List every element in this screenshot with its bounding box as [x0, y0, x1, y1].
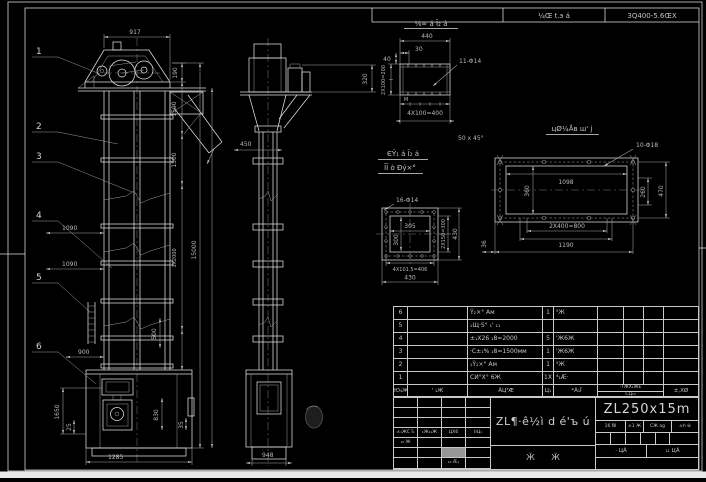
balloon-6: 6 [36, 342, 42, 352]
dim-500: 500 [151, 328, 158, 340]
dim-holes-11: 11-Φ14 [459, 58, 481, 65]
dim-holes-10: 10-Φ18 [636, 142, 658, 149]
dim-360: 360 [524, 185, 531, 197]
dim-holes-16: 16-Φ14 [396, 197, 418, 204]
table-row: 2 ₁Ÿ₂×° Ам1 ⁵Ж [394, 359, 698, 372]
detail-top-flange: ⅛∞ á Ī₂ á 440 30 40 2X100=200 11-Φ14 4X1… [381, 19, 484, 142]
dim-35: 35 [178, 421, 185, 429]
dim-450: 450 [240, 141, 252, 148]
dim-30: 30 [415, 46, 423, 53]
dim-40: 40 [383, 56, 391, 63]
table-row: 5 ₁Щ·Ѕ° ₁' ₁₁ [394, 320, 698, 333]
detail-plate: цØ¼Åв ш' ј 10-Φ18 1098 360 260 470 2X400… [481, 124, 670, 254]
weld-mark: M [404, 97, 408, 103]
header-model-code: 3Q400-5.6ŒX [627, 12, 676, 20]
detail1-title: ⅛∞ á Ī₂ á [415, 19, 448, 28]
title-block-center: ZL¶·ê½ì d é'ъ ú Ӂ Ӝ [491, 398, 596, 469]
title-block-right: ZL250x15m 16 Ñl ±1 Ж СЖ ag ±h ŵ · ЦÃ ₁₁ … [596, 398, 698, 469]
dim-1090-lower: 1090 [62, 261, 77, 268]
dim-430-right: 430 [452, 228, 459, 240]
dim-1285: 1285 [108, 454, 123, 461]
dim-470: 470 [658, 185, 665, 197]
dim-1190: 1190 [558, 242, 573, 249]
header-doc-label: ¼Œ t.э á [538, 12, 570, 20]
dim-1500: 1500 [171, 152, 178, 167]
side-view-dimensions: 450 320 948 [234, 65, 376, 466]
balloon-3: 3 [36, 152, 42, 162]
product-name: ZL¶·ê½ì d é'ъ ú [491, 398, 595, 446]
dim-4x101: 4X101.5=406 [393, 267, 428, 273]
table-row: 1 СИ°Х° 6Ж1Х ⁴₁Æ· [394, 372, 698, 385]
part-balloons: 1 2 3 4 5 6 [32, 47, 132, 384]
dim-2x400: 2X400=800 [549, 223, 585, 230]
dim-25: 25 [66, 423, 73, 431]
dim-917: 917 [129, 29, 141, 36]
dim-36: 36 [481, 240, 488, 248]
side-view [240, 38, 323, 466]
detail3-title: цØ¼Åв ш' ј [552, 124, 593, 133]
spec-row: 16 Ñl ±1 Ж СЖ ag ±h ŵ [596, 421, 698, 433]
approve-row: · ЦÃ ₁₁ ЦÃ [596, 445, 698, 458]
dim-900: 900 [78, 349, 90, 356]
dim-1098: 1098 [558, 179, 573, 186]
balloon-2: 2 [36, 122, 42, 132]
title-block: ±₁ЖϹ Ĭ₁ ₁Ж₁₁Ж ЦХ6 ϷЦ₁ ₁₆ Ж ₁₀ Æ₁ ZL¶·ê½ì… [393, 397, 699, 470]
detail-square-flange: ЄΫ₁ á Ī₂ á ĪĪ ò Đý×° 16-Φ14 305 300 2X15… [376, 149, 462, 285]
table-row: 6 Ÿ₂×° Ам1 ⁵Ж [394, 307, 698, 320]
front-view-dimensions: 917 190 1590 1500 3X2000 15000 1090 1090… [46, 29, 212, 465]
dim-305: 305 [404, 223, 416, 230]
dim-830: 830 [153, 409, 160, 421]
balloon-4: 4 [36, 211, 42, 221]
front-view [78, 38, 222, 462]
empty-cell [596, 458, 698, 468]
chamfer-note: 50 x 45° [458, 135, 484, 142]
sheet-bottom-bar [0, 472, 706, 479]
ink-smudge [306, 406, 323, 428]
table-row: 3 ·С±₁% ₁8=1500мм1 'Ж6Ж [394, 346, 698, 359]
dim-440: 440 [421, 33, 433, 40]
dim-2x100: 2X100=200 [381, 65, 387, 95]
cad-drawing-sheet: ¼Œ t.э á 3Q400-5.6ŒX [0, 0, 706, 482]
table-row: 4 ±₁Х26 ₁8=20005 'Ж6Ж [394, 333, 698, 346]
dim-430-bottom: 430 [404, 275, 416, 282]
dim-4x100: 4X100=400 [407, 110, 443, 117]
balloon-5: 5 [36, 273, 42, 283]
dim-1590: 1590 [171, 101, 178, 116]
dim-190: 190 [172, 67, 179, 79]
dim-1650: 1650 [54, 404, 61, 419]
model-number: ZL250x15m [596, 398, 698, 421]
detail2-title-1: ЄΫ₁ á Ī₂ á [387, 149, 419, 158]
dim-320: 320 [362, 73, 369, 85]
revision-grid: ±₁ЖϹ Ĭ₁ ₁Ж₁₁Ж ЦХ6 ϷЦ₁ ₁₆ Ж ₁₀ Æ₁ [394, 398, 491, 469]
balloon-1: 1 [36, 47, 42, 57]
dim-3x2000: 3X2000 [172, 248, 178, 267]
empty-row [596, 433, 698, 445]
dim-300: 300 [393, 234, 400, 246]
dim-15000: 15000 [191, 240, 198, 259]
dim-2x150: 2X150=300 [441, 219, 447, 249]
highlighted-cell [442, 448, 466, 458]
dim-948: 948 [262, 452, 274, 459]
sheet-note: Ӂ Ӝ [491, 446, 595, 469]
detail2-title-2: ĪĪ ò Đý×° [384, 163, 416, 172]
bom-table: 6 Ÿ₂×° Ам1 ⁵Ж 5 ₁Щ·Ѕ° ₁' ₁₁ 4 ±₁Х26 ₁8=2… [393, 306, 699, 397]
dim-260: 260 [640, 186, 647, 198]
